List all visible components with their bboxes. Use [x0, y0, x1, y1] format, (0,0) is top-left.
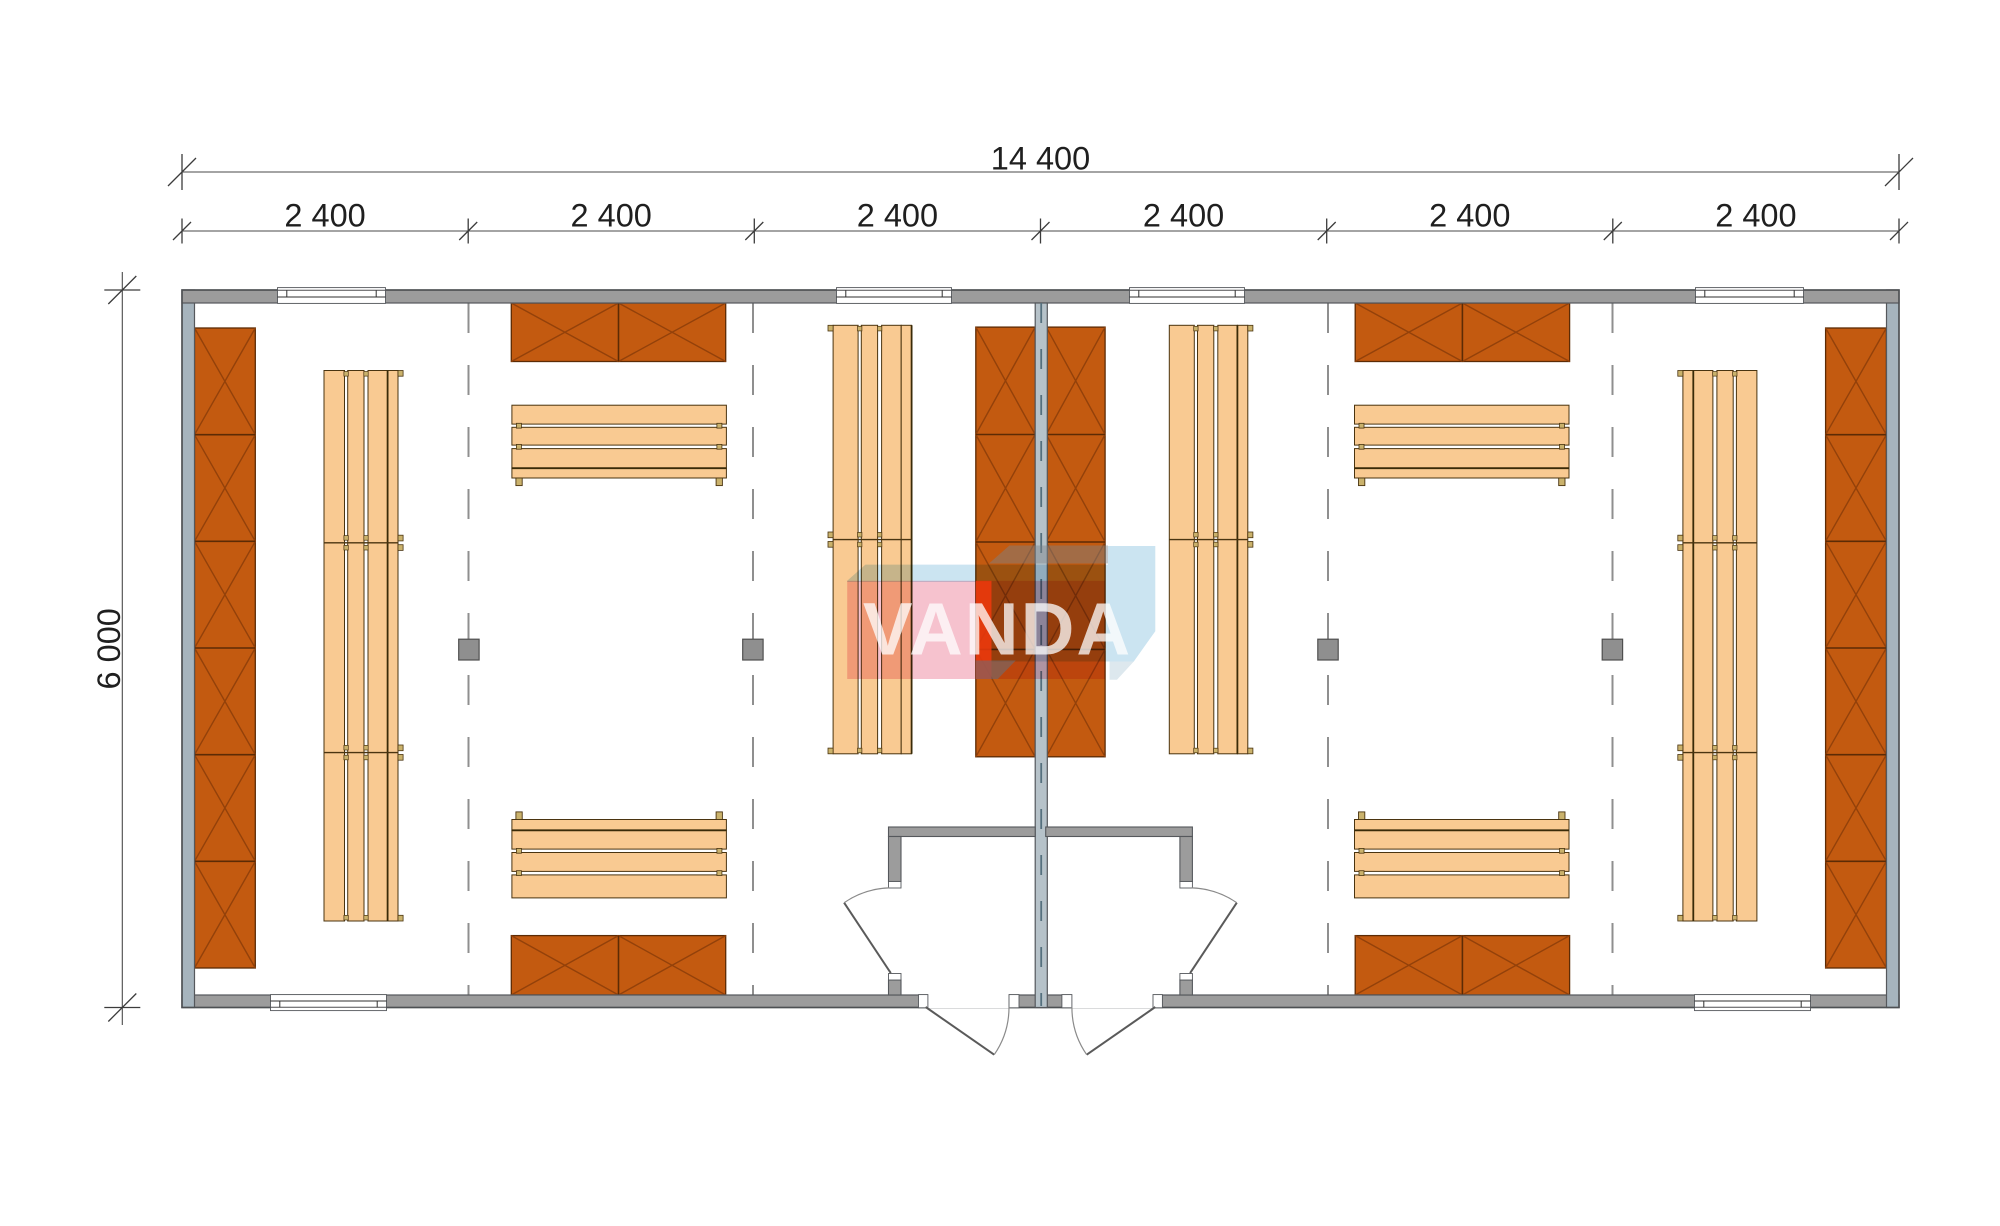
- svg-text:2 400: 2 400: [857, 198, 938, 234]
- svg-text:2 400: 2 400: [284, 198, 365, 234]
- svg-text:2 400: 2 400: [1429, 198, 1510, 234]
- svg-text:2 400: 2 400: [1715, 198, 1796, 234]
- svg-text:2 400: 2 400: [1143, 198, 1224, 234]
- svg-text:VANDA: VANDA: [863, 588, 1132, 671]
- svg-text:2 400: 2 400: [571, 198, 652, 234]
- svg-text:14 400: 14 400: [991, 141, 1090, 177]
- svg-text:6 000: 6 000: [91, 608, 127, 689]
